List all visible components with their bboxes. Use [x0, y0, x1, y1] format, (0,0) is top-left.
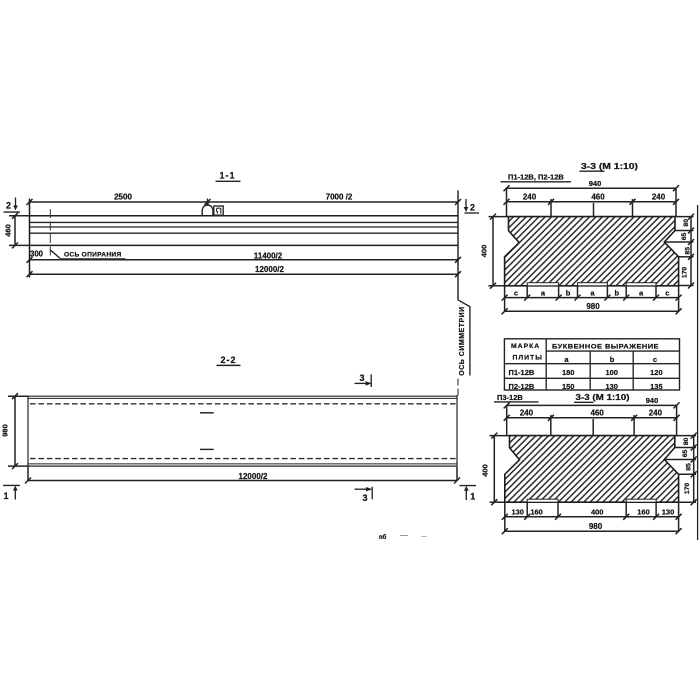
- svg-text:240: 240: [520, 408, 534, 417]
- svg-text:7000 /2: 7000 /2: [326, 193, 353, 202]
- svg-text:240: 240: [652, 193, 666, 202]
- svg-text:3: 3: [359, 373, 364, 383]
- svg-text:2-2: 2-2: [220, 355, 236, 365]
- svg-text:85: 85: [685, 247, 692, 255]
- svg-text:с: с: [653, 355, 657, 364]
- svg-text:160: 160: [530, 507, 543, 516]
- svg-text:БУКВЕННОЕ ВЫРАЖЕНИЕ: БУКВЕННОЕ ВЫРАЖЕНИЕ: [552, 344, 659, 351]
- svg-text:460: 460: [4, 224, 13, 237]
- svg-text:П1-12В, П2-12В: П1-12В, П2-12В: [508, 173, 564, 182]
- svg-text:2500: 2500: [114, 193, 132, 202]
- svg-text:240: 240: [523, 193, 537, 202]
- svg-text:1-1: 1-1: [219, 171, 235, 181]
- svg-text:а: а: [590, 289, 595, 298]
- svg-text:12000/2: 12000/2: [239, 472, 268, 481]
- svg-text:980: 980: [586, 302, 600, 311]
- svg-text:170: 170: [684, 483, 691, 495]
- svg-text:130: 130: [605, 382, 618, 391]
- svg-text:980: 980: [1, 424, 10, 437]
- svg-text:а: а: [639, 289, 644, 298]
- svg-text:150: 150: [562, 382, 575, 391]
- svg-text:12000/2: 12000/2: [255, 265, 284, 274]
- svg-text:135: 135: [650, 382, 663, 391]
- svg-text:400: 400: [481, 464, 490, 477]
- svg-text:130: 130: [511, 507, 524, 516]
- svg-text:940: 940: [589, 179, 602, 188]
- svg-text:180: 180: [562, 368, 575, 377]
- svg-text:2: 2: [6, 201, 11, 211]
- svg-text:а: а: [564, 355, 569, 364]
- svg-text:130: 130: [662, 507, 675, 516]
- svg-text:11400/2: 11400/2: [254, 251, 283, 260]
- svg-text:пб: пб: [379, 534, 387, 541]
- svg-text:240: 240: [649, 408, 663, 417]
- svg-text:b: b: [610, 355, 615, 364]
- svg-text:ОСЬ ОПИРАНИЯ: ОСЬ ОПИРАНИЯ: [64, 252, 122, 259]
- svg-text:80: 80: [683, 438, 690, 446]
- svg-text:1: 1: [470, 492, 475, 502]
- svg-text:с: с: [665, 289, 669, 298]
- svg-text:b: b: [566, 289, 571, 298]
- svg-text:2: 2: [470, 203, 475, 213]
- svg-text:170: 170: [682, 267, 689, 279]
- svg-text:1: 1: [3, 491, 8, 501]
- svg-text:3: 3: [362, 493, 367, 503]
- svg-text:940: 940: [646, 396, 659, 405]
- svg-text:3-3 (М 1:10): 3-3 (М 1:10): [576, 393, 630, 402]
- svg-text:П1-12В: П1-12В: [509, 368, 535, 377]
- svg-text:а: а: [541, 289, 546, 298]
- svg-text:ОСЬ СИММЕТРИИ: ОСЬ СИММЕТРИИ: [459, 306, 466, 375]
- svg-text:85: 85: [686, 463, 693, 471]
- svg-text:400: 400: [480, 245, 489, 258]
- svg-text:160: 160: [637, 507, 650, 516]
- svg-text:980: 980: [589, 522, 603, 531]
- svg-text:с: с: [514, 289, 518, 298]
- svg-text:65: 65: [682, 450, 689, 458]
- svg-text:80: 80: [683, 219, 690, 227]
- svg-text:МАРКА: МАРКА: [511, 343, 540, 350]
- svg-text:П2-12В: П2-12В: [509, 382, 535, 391]
- svg-text:460: 460: [591, 193, 605, 202]
- svg-text:b: b: [615, 289, 620, 298]
- svg-text:400: 400: [591, 507, 604, 516]
- svg-text:П3-12В: П3-12В: [497, 393, 523, 402]
- svg-text:100: 100: [605, 368, 618, 377]
- svg-text:3-3 (М 1:10): 3-3 (М 1:10): [581, 162, 638, 171]
- svg-text:65: 65: [681, 233, 688, 241]
- svg-text:ПЛИТЫ: ПЛИТЫ: [513, 355, 543, 362]
- svg-text:120: 120: [650, 368, 663, 377]
- svg-text:460: 460: [591, 408, 605, 417]
